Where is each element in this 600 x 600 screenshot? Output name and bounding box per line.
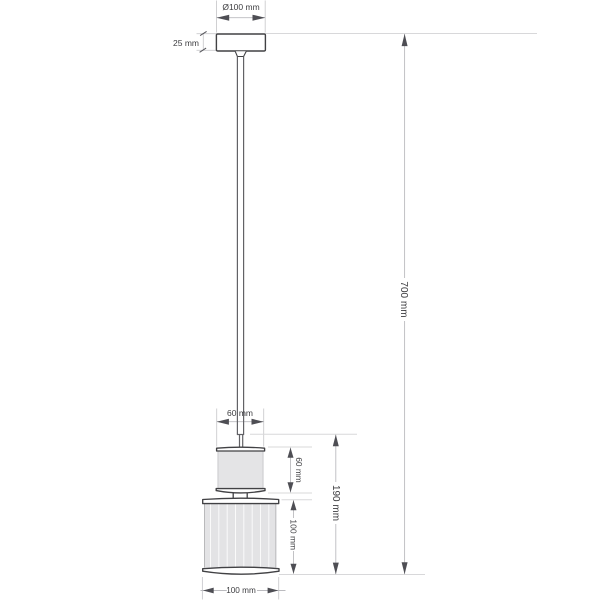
svg-text:Ø100 mm: Ø100 mm — [222, 2, 259, 12]
svg-text:60 mm: 60 mm — [294, 457, 304, 482]
svg-text:25 mm: 25 mm — [173, 38, 199, 48]
svg-text:60 mm: 60 mm — [227, 408, 253, 418]
svg-text:190 mm: 190 mm — [330, 485, 341, 521]
svg-text:100 mm: 100 mm — [289, 519, 299, 550]
svg-text:700 mm: 700 mm — [398, 281, 409, 317]
svg-text:100 mm: 100 mm — [226, 586, 256, 595]
